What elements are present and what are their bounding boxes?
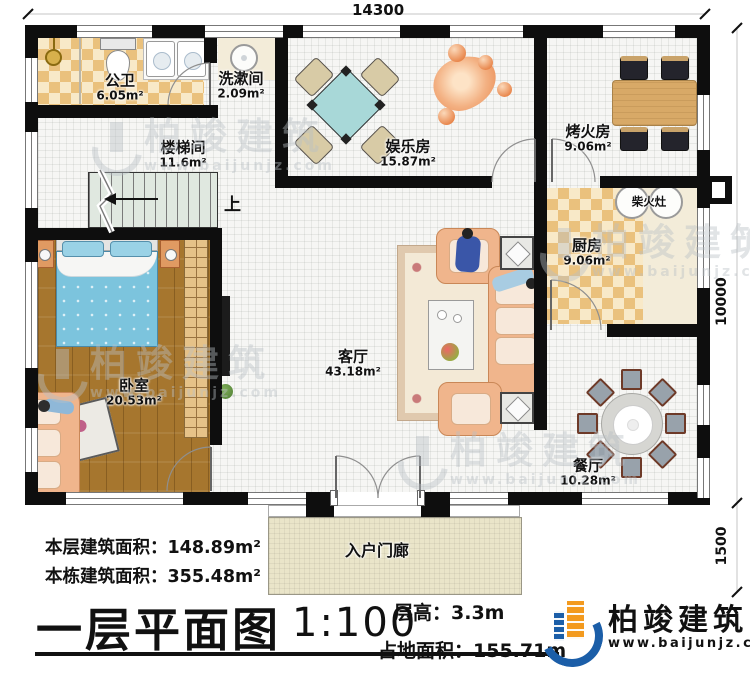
floor-area-line: 本层建筑面积：148.89m² [45, 534, 261, 563]
room-label-kitchen: 厨房 9.06m² [563, 237, 610, 268]
total-area-line: 本栋建筑面积：355.48m² [45, 563, 261, 592]
room-label-public-bath: 公卫 6.05m² [96, 72, 143, 103]
room-name: 洗漱间 [217, 70, 264, 87]
room-area: 43.18m² [325, 366, 381, 380]
room-area: 20.53m² [106, 395, 162, 409]
room-label-living: 客厅 43.18m² [325, 348, 381, 379]
brand-logo-icon [540, 597, 600, 659]
floor-height-value: 3.3m [451, 602, 504, 624]
label-wood-stove: 柴火灶 [632, 195, 667, 208]
room-name: 烤火房 [564, 123, 611, 140]
room-name: 餐厅 [560, 457, 616, 474]
room-name: 公卫 [96, 72, 143, 89]
room-label-washroom: 洗漱间 2.09m² [217, 70, 264, 101]
floor-plan-page: { "dimensions": { "top": "14300", "right… [0, 0, 750, 669]
floor-area-label: 本层建筑面积： [45, 538, 168, 558]
title-underline [35, 652, 559, 656]
room-area: 15.87m² [380, 156, 436, 170]
floor-height-line: 层高：3.3m [378, 594, 566, 632]
area-statistics: 本层建筑面积：148.89m² 本栋建筑面积：355.48m² [45, 534, 261, 592]
room-label-recreation: 娱乐房 15.87m² [380, 138, 436, 169]
room-name: 娱乐房 [380, 138, 436, 155]
land-area-label: 占地面积： [378, 640, 473, 662]
stairs-up-label: 上 [224, 190, 241, 215]
room-area: 11.6m² [159, 157, 206, 171]
room-area: 9.06m² [564, 141, 611, 155]
room-area: 9.06m² [563, 255, 610, 269]
brand-site: www.baijunjz.com [608, 636, 750, 651]
brand-logo: 柏竣建筑 www.baijunjz.com [540, 597, 750, 659]
room-area: 2.09m² [217, 88, 264, 102]
room-label-dining: 餐厅 10.28m² [560, 457, 616, 488]
room-area: 6.05m² [96, 90, 143, 104]
room-name: 厨房 [563, 237, 610, 254]
label-porch: 入户门廊 [345, 542, 409, 560]
land-area-line: 占地面积：155.71m [378, 632, 566, 670]
total-area-value: 355.48m² [168, 567, 261, 587]
room-label-bedroom: 卧室 20.53m² [106, 377, 162, 408]
dimension-top: 14300 [352, 1, 404, 19]
brand-name: 柏竣建筑 [608, 605, 750, 637]
total-area-label: 本栋建筑面积： [45, 567, 168, 587]
room-name: 入户门廊 [345, 542, 409, 560]
dimension-right-lower: 1500 [714, 524, 730, 568]
page-title: 一层平面图 [36, 594, 281, 660]
floor-height-label: 层高： [394, 602, 451, 624]
floor-area-value: 148.89m² [168, 538, 261, 558]
room-name: 客厅 [325, 348, 381, 365]
room-label-stair-hall: 楼梯间 11.6m² [159, 139, 206, 170]
dimension-right-upper: 10000 [714, 282, 730, 326]
room-area: 10.28m² [560, 475, 616, 489]
plan-specs: 层高：3.3m 占地面积：155.71m [378, 594, 566, 670]
room-name: 楼梯间 [159, 139, 206, 156]
room-label-fire-room: 烤火房 9.06m² [564, 123, 611, 154]
room-name: 卧室 [106, 377, 162, 394]
